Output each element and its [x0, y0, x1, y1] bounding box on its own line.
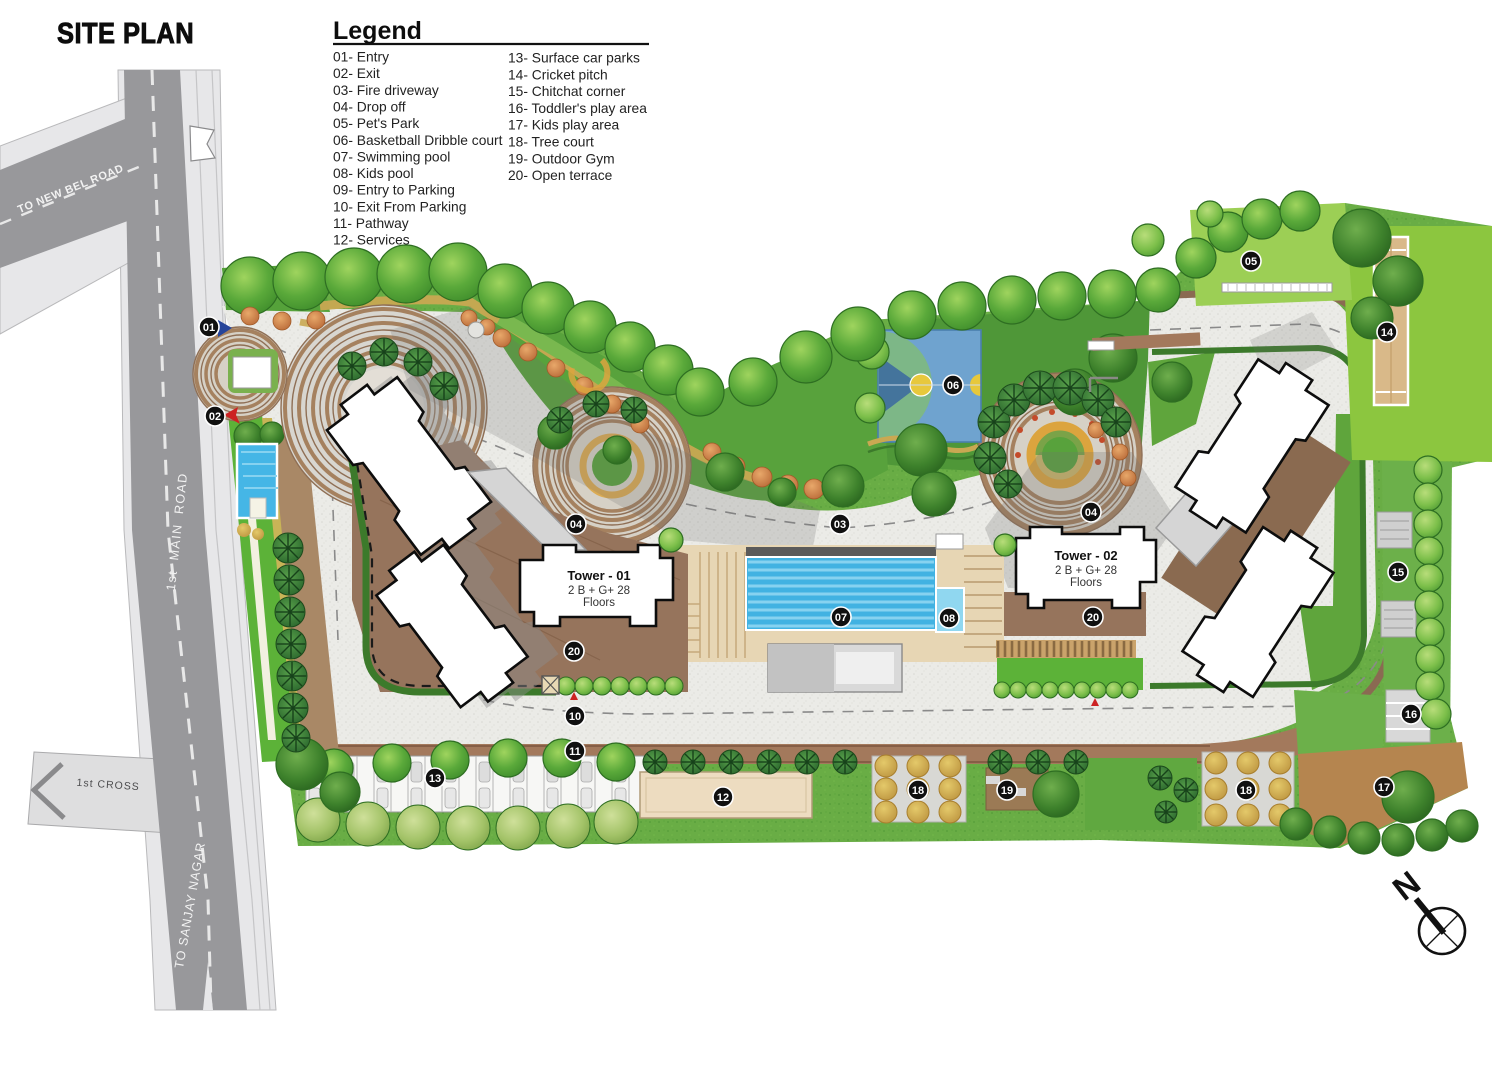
svg-text:Floors: Floors	[583, 597, 615, 609]
svg-text:05- Pet's Park: 05- Pet's Park	[333, 116, 419, 131]
svg-text:15: 15	[1392, 567, 1404, 579]
svg-text:17: 17	[1378, 782, 1390, 794]
svg-text:2 B + G+ 28: 2 B + G+ 28	[1055, 565, 1117, 577]
svg-text:06: 06	[947, 380, 959, 392]
svg-text:2 B + G+ 28: 2 B + G+ 28	[568, 585, 630, 597]
svg-text:13- Surface car parks: 13- Surface car parks	[508, 51, 640, 66]
svg-text:16- Toddler's play area: 16- Toddler's play area	[508, 101, 647, 116]
svg-text:03- Fire driveway: 03- Fire driveway	[333, 83, 439, 98]
svg-text:02: 02	[209, 411, 221, 423]
svg-text:07- Swimming pool: 07- Swimming pool	[333, 149, 450, 164]
svg-text:14: 14	[1381, 327, 1394, 339]
svg-text:11: 11	[569, 746, 581, 758]
svg-text:15- Chitchat corner: 15- Chitchat corner	[508, 84, 626, 99]
svg-text:20: 20	[1087, 612, 1099, 624]
svg-text:10: 10	[569, 711, 581, 723]
svg-text:01- Entry: 01- Entry	[333, 50, 389, 65]
svg-text:Legend: Legend	[333, 17, 422, 45]
svg-text:04: 04	[1085, 507, 1098, 519]
svg-text:20: 20	[568, 646, 580, 658]
svg-text:05: 05	[1245, 256, 1257, 268]
svg-text:03: 03	[834, 519, 846, 531]
svg-text:06- Basketball Dribble court: 06- Basketball Dribble court	[333, 133, 503, 148]
svg-text:17- Kids play area: 17- Kids play area	[508, 118, 620, 133]
svg-text:SITE PLAN: SITE PLAN	[57, 16, 194, 49]
svg-text:16: 16	[1405, 709, 1417, 721]
svg-text:Tower - 01: Tower - 01	[567, 568, 630, 583]
svg-text:09- Entry to Parking: 09- Entry to Parking	[333, 183, 455, 198]
svg-text:19: 19	[1001, 785, 1013, 797]
svg-text:Tower - 02: Tower - 02	[1054, 548, 1117, 563]
svg-text:13: 13	[429, 773, 441, 785]
svg-text:12- Services: 12- Services	[333, 233, 410, 248]
svg-text:14- Cricket pitch: 14- Cricket pitch	[508, 67, 608, 82]
svg-text:18: 18	[912, 785, 924, 797]
svg-text:04: 04	[570, 519, 583, 531]
svg-text:04- Drop off: 04- Drop off	[333, 99, 406, 114]
svg-text:12: 12	[717, 792, 729, 804]
svg-text:20- Open terrace: 20- Open terrace	[508, 168, 613, 183]
svg-text:18- Tree court: 18- Tree court	[508, 135, 594, 150]
svg-text:08- Kids pool: 08- Kids pool	[333, 166, 414, 181]
svg-text:08: 08	[943, 613, 955, 625]
svg-text:01: 01	[203, 322, 215, 334]
svg-text:18: 18	[1240, 785, 1252, 797]
svg-text:19- Outdoor Gym: 19- Outdoor Gym	[508, 151, 615, 166]
svg-text:11- Pathway: 11- Pathway	[333, 216, 409, 231]
svg-text:02- Exit: 02- Exit	[333, 66, 380, 81]
svg-text:Floors: Floors	[1070, 577, 1102, 589]
svg-text:10- Exit From Parking: 10- Exit From Parking	[333, 199, 466, 214]
svg-text:07: 07	[835, 612, 847, 624]
